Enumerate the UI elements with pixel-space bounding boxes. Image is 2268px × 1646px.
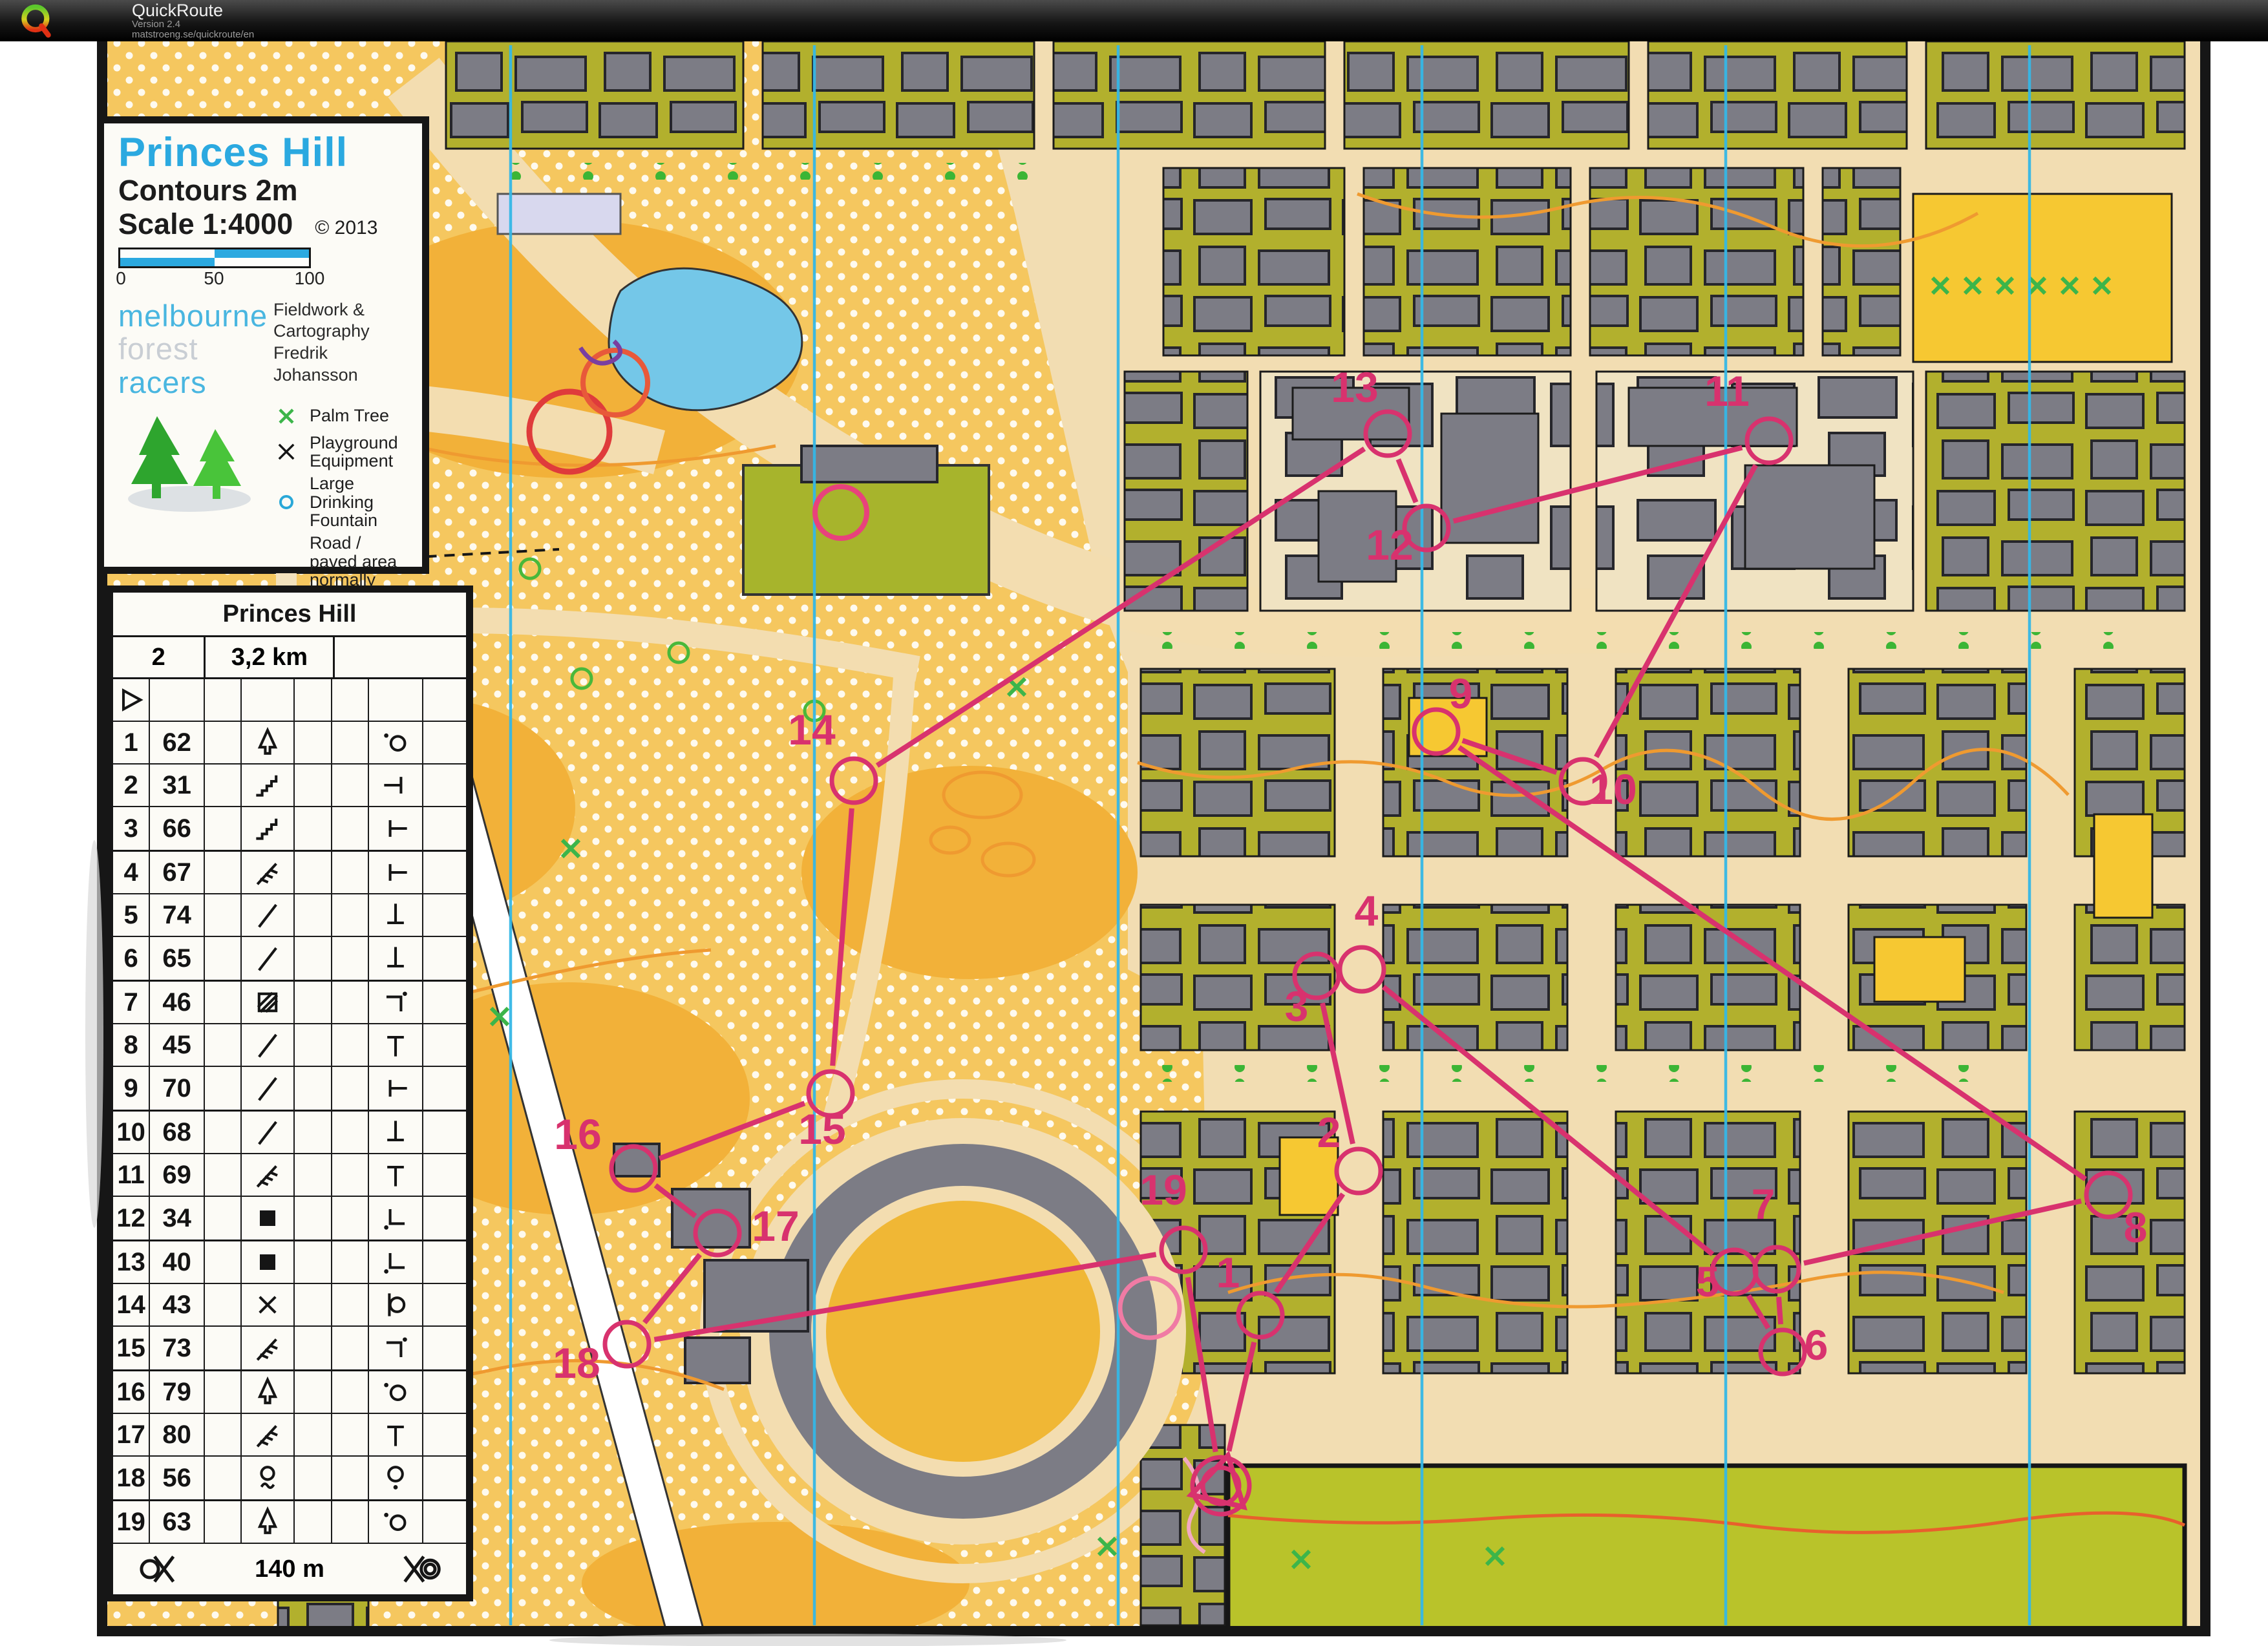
card-rows: 1622313664675746657468459701068116912341…	[113, 679, 466, 1544]
bowling-green	[743, 465, 989, 595]
quickroute-window: { "app_bar": { "title": "QuickRoute", "v…	[0, 0, 2268, 1646]
control-number: 5	[1696, 1258, 1720, 1305]
control-row: 1856	[113, 1457, 466, 1501]
control-row: 665	[113, 937, 466, 982]
scale-bar	[118, 248, 311, 268]
control-row: 1234	[113, 1197, 466, 1241]
control-row: 970	[113, 1067, 466, 1112]
course-leg	[1779, 1297, 1781, 1324]
control-row: 1340	[113, 1241, 466, 1284]
control-number: 8	[2124, 1203, 2148, 1251]
card-footer: 140 m	[113, 1544, 466, 1594]
control-number: 15	[798, 1105, 845, 1153]
finish-distance: 140 m	[203, 1556, 376, 1583]
sports-field	[1228, 1466, 2185, 1629]
control-number: 14	[788, 706, 836, 754]
control-number: 18	[553, 1339, 600, 1387]
control-row: 574	[113, 894, 466, 937]
control-number: 19	[1139, 1166, 1187, 1214]
control-number: 12	[1366, 521, 1413, 569]
control-row: 1068	[113, 1112, 466, 1154]
map-copyright: © 2013	[315, 217, 377, 239]
card-title: Princes Hill	[113, 593, 466, 637]
legend-item: Palm Tree	[273, 403, 409, 429]
control-number: 3	[1285, 982, 1309, 1030]
playground-equipment-icon	[273, 439, 303, 465]
scale-bar-labels: 0 50 100	[118, 268, 312, 289]
app-title-bar: QuickRoute Version 2.4 matstroeng.se/qui…	[0, 0, 2268, 41]
quickroute-logo-icon	[17, 3, 56, 39]
control-number: 4	[1355, 887, 1379, 934]
map-title: Princes Hill	[118, 131, 409, 174]
control-row: 231	[113, 765, 466, 807]
control-row: 1679	[113, 1371, 466, 1414]
light-building	[498, 194, 620, 234]
control-number: 11	[1704, 367, 1750, 415]
legend-item: Playground Equipment	[273, 434, 409, 470]
taped-route-start-icon	[113, 1550, 203, 1588]
club-trees-icon	[118, 403, 254, 513]
control-number: 1	[1216, 1249, 1240, 1296]
app-url: matstroeng.se/quickroute/en	[132, 30, 254, 40]
map-scale: Scale 1:4000	[118, 207, 293, 241]
control-row: 1780	[113, 1414, 466, 1457]
course-number: 2	[113, 637, 206, 677]
control-number: 9	[1449, 670, 1473, 717]
control-number: 17	[752, 1202, 799, 1250]
control-number: 10	[1589, 765, 1637, 813]
course-length: 3,2 km	[206, 637, 335, 677]
control-number: 2	[1317, 1108, 1341, 1156]
map-contours: Contours 2m	[118, 174, 409, 207]
legend-label: Large Drinking Fountain	[310, 474, 409, 529]
tree-row	[1150, 1065, 1978, 1082]
control-row: 162	[113, 722, 466, 765]
control-row: 467	[113, 852, 466, 894]
control-row: 1169	[113, 1154, 466, 1197]
card-course-info: 2 3,2 km	[113, 637, 466, 679]
paper-edge-shadow	[85, 840, 103, 1228]
control-number: 13	[1331, 363, 1378, 411]
app-version: Version 2.4	[132, 19, 254, 30]
control-row: 1573	[113, 1327, 466, 1371]
legend-label: Palm Tree	[310, 406, 389, 425]
credits: Fieldwork & Cartography Fredrik Johansso…	[273, 299, 409, 386]
course-climb	[335, 637, 466, 677]
control-row: 746	[113, 982, 466, 1024]
app-title: QuickRoute	[132, 1, 254, 19]
control-number: 16	[554, 1110, 601, 1158]
club-logo-text: melbourne forest racers	[118, 299, 268, 399]
legend-item: Large Drinking Fountain	[273, 474, 409, 529]
drinking-fountain-icon	[273, 489, 303, 515]
finish-icon	[376, 1550, 466, 1588]
control-row: 845	[113, 1024, 466, 1067]
control-number: 7	[1752, 1180, 1775, 1228]
legend-label: Playground Equipment	[310, 434, 409, 470]
palm-tree-icon	[273, 403, 303, 429]
pavilion	[801, 446, 937, 482]
control-row: 366	[113, 807, 466, 852]
map-info-panel: Princes Hill Contours 2m Scale 1:4000 © …	[97, 116, 429, 574]
control-row: 1443	[113, 1284, 466, 1327]
control-card: Princes Hill 2 3,2 km 162231366467574665…	[106, 586, 473, 1601]
control-row: 1963	[113, 1501, 466, 1544]
tree-row	[452, 163, 1034, 180]
start-row	[113, 679, 466, 722]
control-number: 6	[1805, 1321, 1828, 1369]
